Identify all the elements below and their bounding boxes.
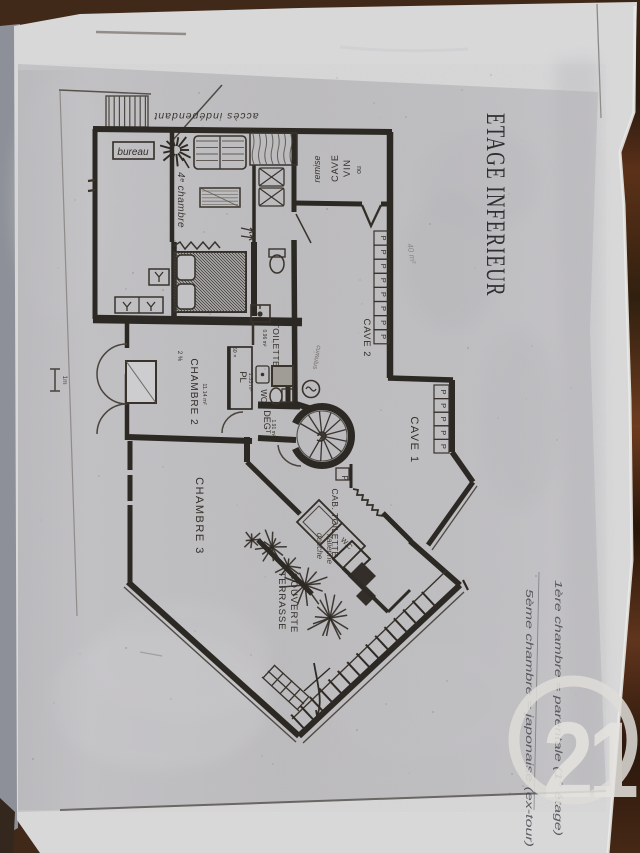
svg-text:accès indépendant: accès indépendant (153, 110, 258, 122)
svg-text:PL: PL (237, 371, 248, 383)
svg-text:P: P (379, 292, 388, 297)
svg-text:0.96 m²: 0.96 m² (261, 330, 267, 347)
svg-text:P: P (379, 250, 388, 255)
svg-text:P: P (439, 389, 448, 394)
svg-text:1m: 1m (61, 375, 68, 384)
svg-text:P: P (379, 334, 388, 339)
svg-text:11.14 m²: 11.14 m² (201, 383, 207, 404)
svg-text:CAVE 2: CAVE 2 (361, 318, 372, 357)
svg-text:VIN: VIN (342, 159, 352, 177)
svg-text:TOILETTE: TOILETTE (271, 323, 281, 367)
svg-text:21: 21 (543, 701, 637, 821)
svg-text:P: P (340, 475, 349, 480)
svg-text:TERRASSE: TERRASSE (276, 571, 287, 630)
svg-text:1.91 m²: 1.91 m² (270, 420, 276, 437)
svg-text:P: P (379, 278, 388, 283)
svg-text:bureau: bureau (117, 147, 149, 158)
svg-text:1.33 m²: 1.33 m² (247, 373, 253, 392)
svg-text:P: P (379, 320, 388, 325)
svg-text:60 ×: 60 × (231, 347, 237, 358)
svg-text:CHAMBRE 2: CHAMBRE 2 (188, 358, 199, 425)
svg-text:CAVE: CAVE (330, 154, 340, 182)
svg-text:WC: WC (259, 389, 268, 403)
svg-text:2 %: 2 % (176, 351, 182, 362)
svg-text:P: P (439, 444, 448, 449)
svg-text:P: P (379, 235, 388, 240)
svg-text:4ᵉ chambre: 4ᵉ chambre (175, 172, 186, 228)
svg-text:CAVE 1: CAVE 1 (408, 416, 420, 463)
svg-text:CHAMBRE 3: CHAMBRE 3 (193, 477, 205, 555)
svg-text:ou: ou (356, 166, 363, 174)
svg-text:P: P (379, 264, 388, 269)
svg-text:5ème chambre = japonaise (ex-t: 5ème chambre = japonaise (ex-tour) (523, 589, 534, 847)
svg-text:P: P (439, 417, 448, 422)
svg-text:P: P (439, 430, 448, 435)
svg-text:remise: remise (312, 155, 322, 182)
svg-text:ETAGE INFERIEUR: ETAGE INFERIEUR (481, 113, 510, 297)
svg-text:P: P (379, 306, 388, 311)
svg-text:P: P (439, 403, 448, 408)
